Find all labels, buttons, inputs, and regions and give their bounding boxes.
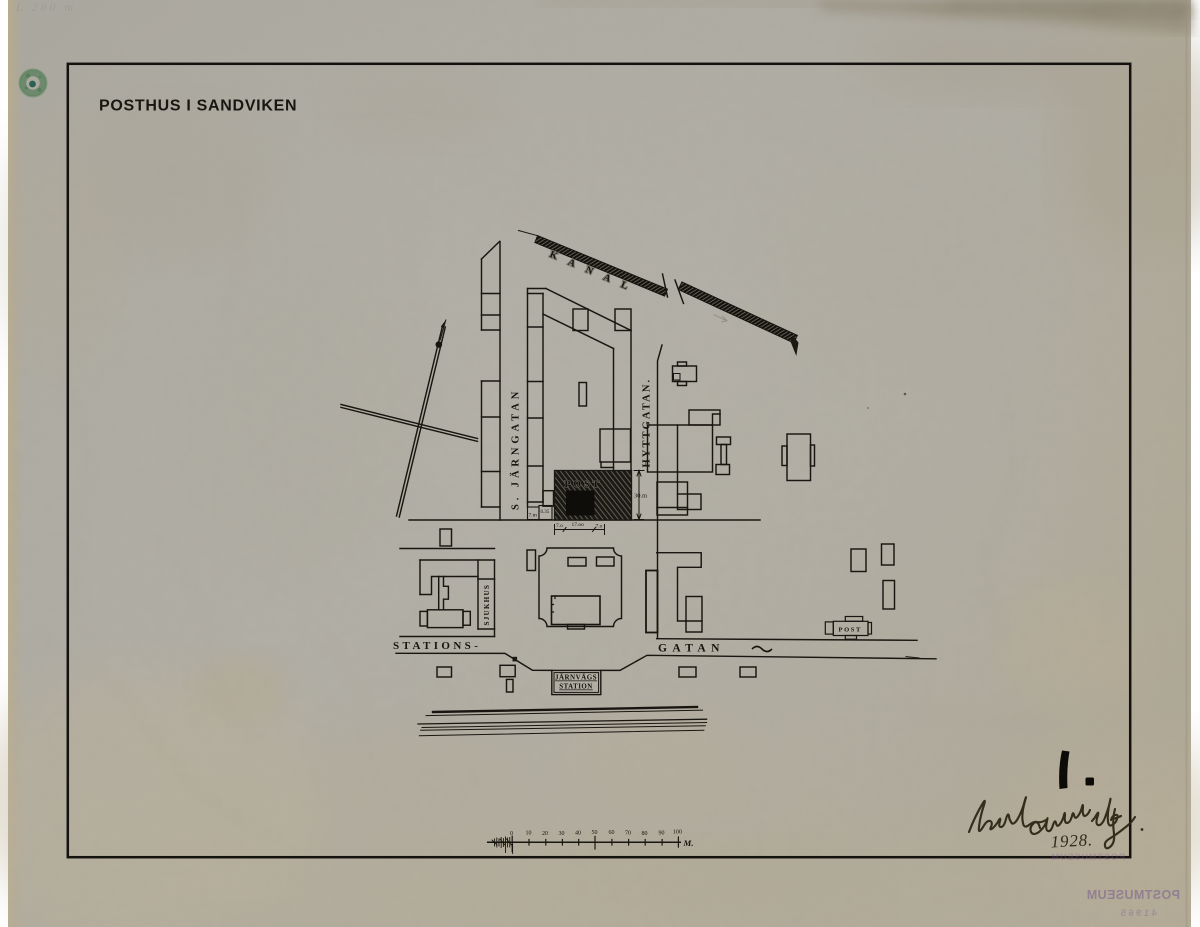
- svg-text:60: 60: [609, 830, 615, 836]
- svg-text:30.m: 30.m: [634, 493, 647, 500]
- svg-text:100: 100: [673, 830, 682, 836]
- svg-text:0: 0: [510, 831, 513, 837]
- svg-text:7.o: 7.o: [556, 523, 563, 529]
- svg-text:L 280 m: L 280 m: [15, 0, 76, 14]
- svg-text:POSTHUS I SANDVIKEN: POSTHUS I SANDVIKEN: [99, 98, 297, 115]
- svg-text:STATIONS-: STATIONS-: [393, 640, 481, 652]
- svg-text:SJUKHUS: SJUKHUS: [483, 584, 491, 626]
- svg-text:7.m: 7.m: [529, 513, 538, 519]
- svg-text:GATAN: GATAN: [658, 643, 725, 655]
- svg-text:POSTMUSEUM: POSTMUSEUM: [1050, 852, 1125, 862]
- svg-text:JÄRNVÄGS: JÄRNVÄGS: [555, 674, 597, 682]
- svg-text:41965: 41965: [1118, 908, 1157, 919]
- svg-text:20: 20: [542, 831, 548, 837]
- svg-text:17.oo: 17.oo: [572, 522, 585, 528]
- svg-text:POST: POST: [565, 480, 603, 490]
- svg-text:0.35: 0.35: [541, 510, 550, 515]
- svg-text:HYTTGATAN.: HYTTGATAN.: [642, 378, 653, 468]
- svg-text:1928.: 1928.: [1050, 830, 1093, 851]
- svg-text:M.: M.: [683, 838, 694, 848]
- svg-text:10: 10: [526, 831, 532, 837]
- svg-text:90: 90: [659, 831, 665, 837]
- svg-text:40: 40: [575, 831, 581, 837]
- svg-text:30: 30: [559, 831, 565, 837]
- svg-text:7.o: 7.o: [596, 524, 603, 530]
- svg-text:POST: POST: [839, 627, 862, 634]
- svg-text:50: 50: [592, 830, 598, 836]
- svg-text:70: 70: [625, 831, 631, 837]
- svg-text:POSTMUSEUM: POSTMUSEUM: [1086, 888, 1180, 902]
- svg-text:S. JÄRNGATAN: S. JÄRNGATAN: [509, 388, 522, 510]
- svg-text:STATION: STATION: [559, 684, 593, 691]
- svg-text:80: 80: [642, 831, 648, 837]
